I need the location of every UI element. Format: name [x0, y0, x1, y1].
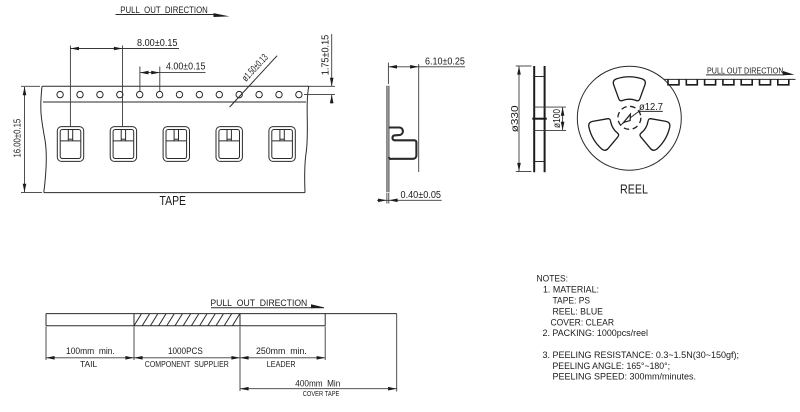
- svg-text:LEADER: LEADER: [267, 360, 296, 369]
- svg-text:PEELING SPEED: 300mm/minutes.: PEELING SPEED: 300mm/minutes.: [553, 372, 697, 383]
- svg-text:1. MATERIAL:: 1. MATERIAL:: [543, 285, 599, 296]
- svg-text:1.75±0.15: 1.75±0.15: [321, 34, 332, 75]
- svg-text:100mm min.: 100mm min.: [66, 346, 115, 356]
- svg-text:ø100: ø100: [552, 109, 563, 128]
- svg-text:ø330: ø330: [510, 105, 521, 132]
- svg-text:400mm Min: 400mm Min: [295, 378, 340, 388]
- svg-text:6.10±0.25: 6.10±0.25: [425, 56, 465, 67]
- svg-text:PULL OUT DIRECTION: PULL OUT DIRECTION: [707, 67, 784, 76]
- svg-text:COMPONENT SUPPLIER: COMPONENT SUPPLIER: [145, 360, 229, 369]
- svg-text:REEL: REEL: [620, 183, 648, 197]
- svg-text:PULL OUT DIRECTION: PULL OUT DIRECTION: [120, 5, 208, 15]
- svg-text:PEELING ANGLE: 165°~180°;: PEELING ANGLE: 165°~180°;: [553, 361, 671, 372]
- svg-text:COVER: CLEAR: COVER: CLEAR: [551, 317, 615, 328]
- svg-text:8.00±0.15: 8.00±0.15: [137, 38, 178, 49]
- svg-text:NOTES:: NOTES:: [537, 274, 569, 285]
- svg-text:2. PACKING: 1000pcs/reel: 2. PACKING: 1000pcs/reel: [543, 328, 649, 339]
- svg-text:TAPE: PS: TAPE: PS: [553, 296, 591, 307]
- svg-text:TAPE: TAPE: [160, 194, 187, 208]
- svg-text:TAIL: TAIL: [80, 360, 98, 369]
- svg-text:0.40±0.05: 0.40±0.05: [401, 190, 442, 201]
- svg-text:REEL: BLUE: REEL: BLUE: [553, 307, 604, 318]
- svg-text:PULL OUT DIRECTION: PULL OUT DIRECTION: [210, 298, 307, 308]
- svg-text:16.00±0.15: 16.00±0.15: [13, 118, 24, 157]
- svg-text:250mm min.: 250mm min.: [256, 346, 307, 356]
- svg-text:COVER TAPE: COVER TAPE: [303, 389, 340, 398]
- svg-text:4.00±0.15: 4.00±0.15: [166, 62, 206, 73]
- svg-text:1000PCS: 1000PCS: [168, 346, 203, 356]
- svg-text:3. PEELING RESISTANCE: 0.3~1.5: 3. PEELING RESISTANCE: 0.3~1.5N(30~150gf…: [543, 350, 740, 361]
